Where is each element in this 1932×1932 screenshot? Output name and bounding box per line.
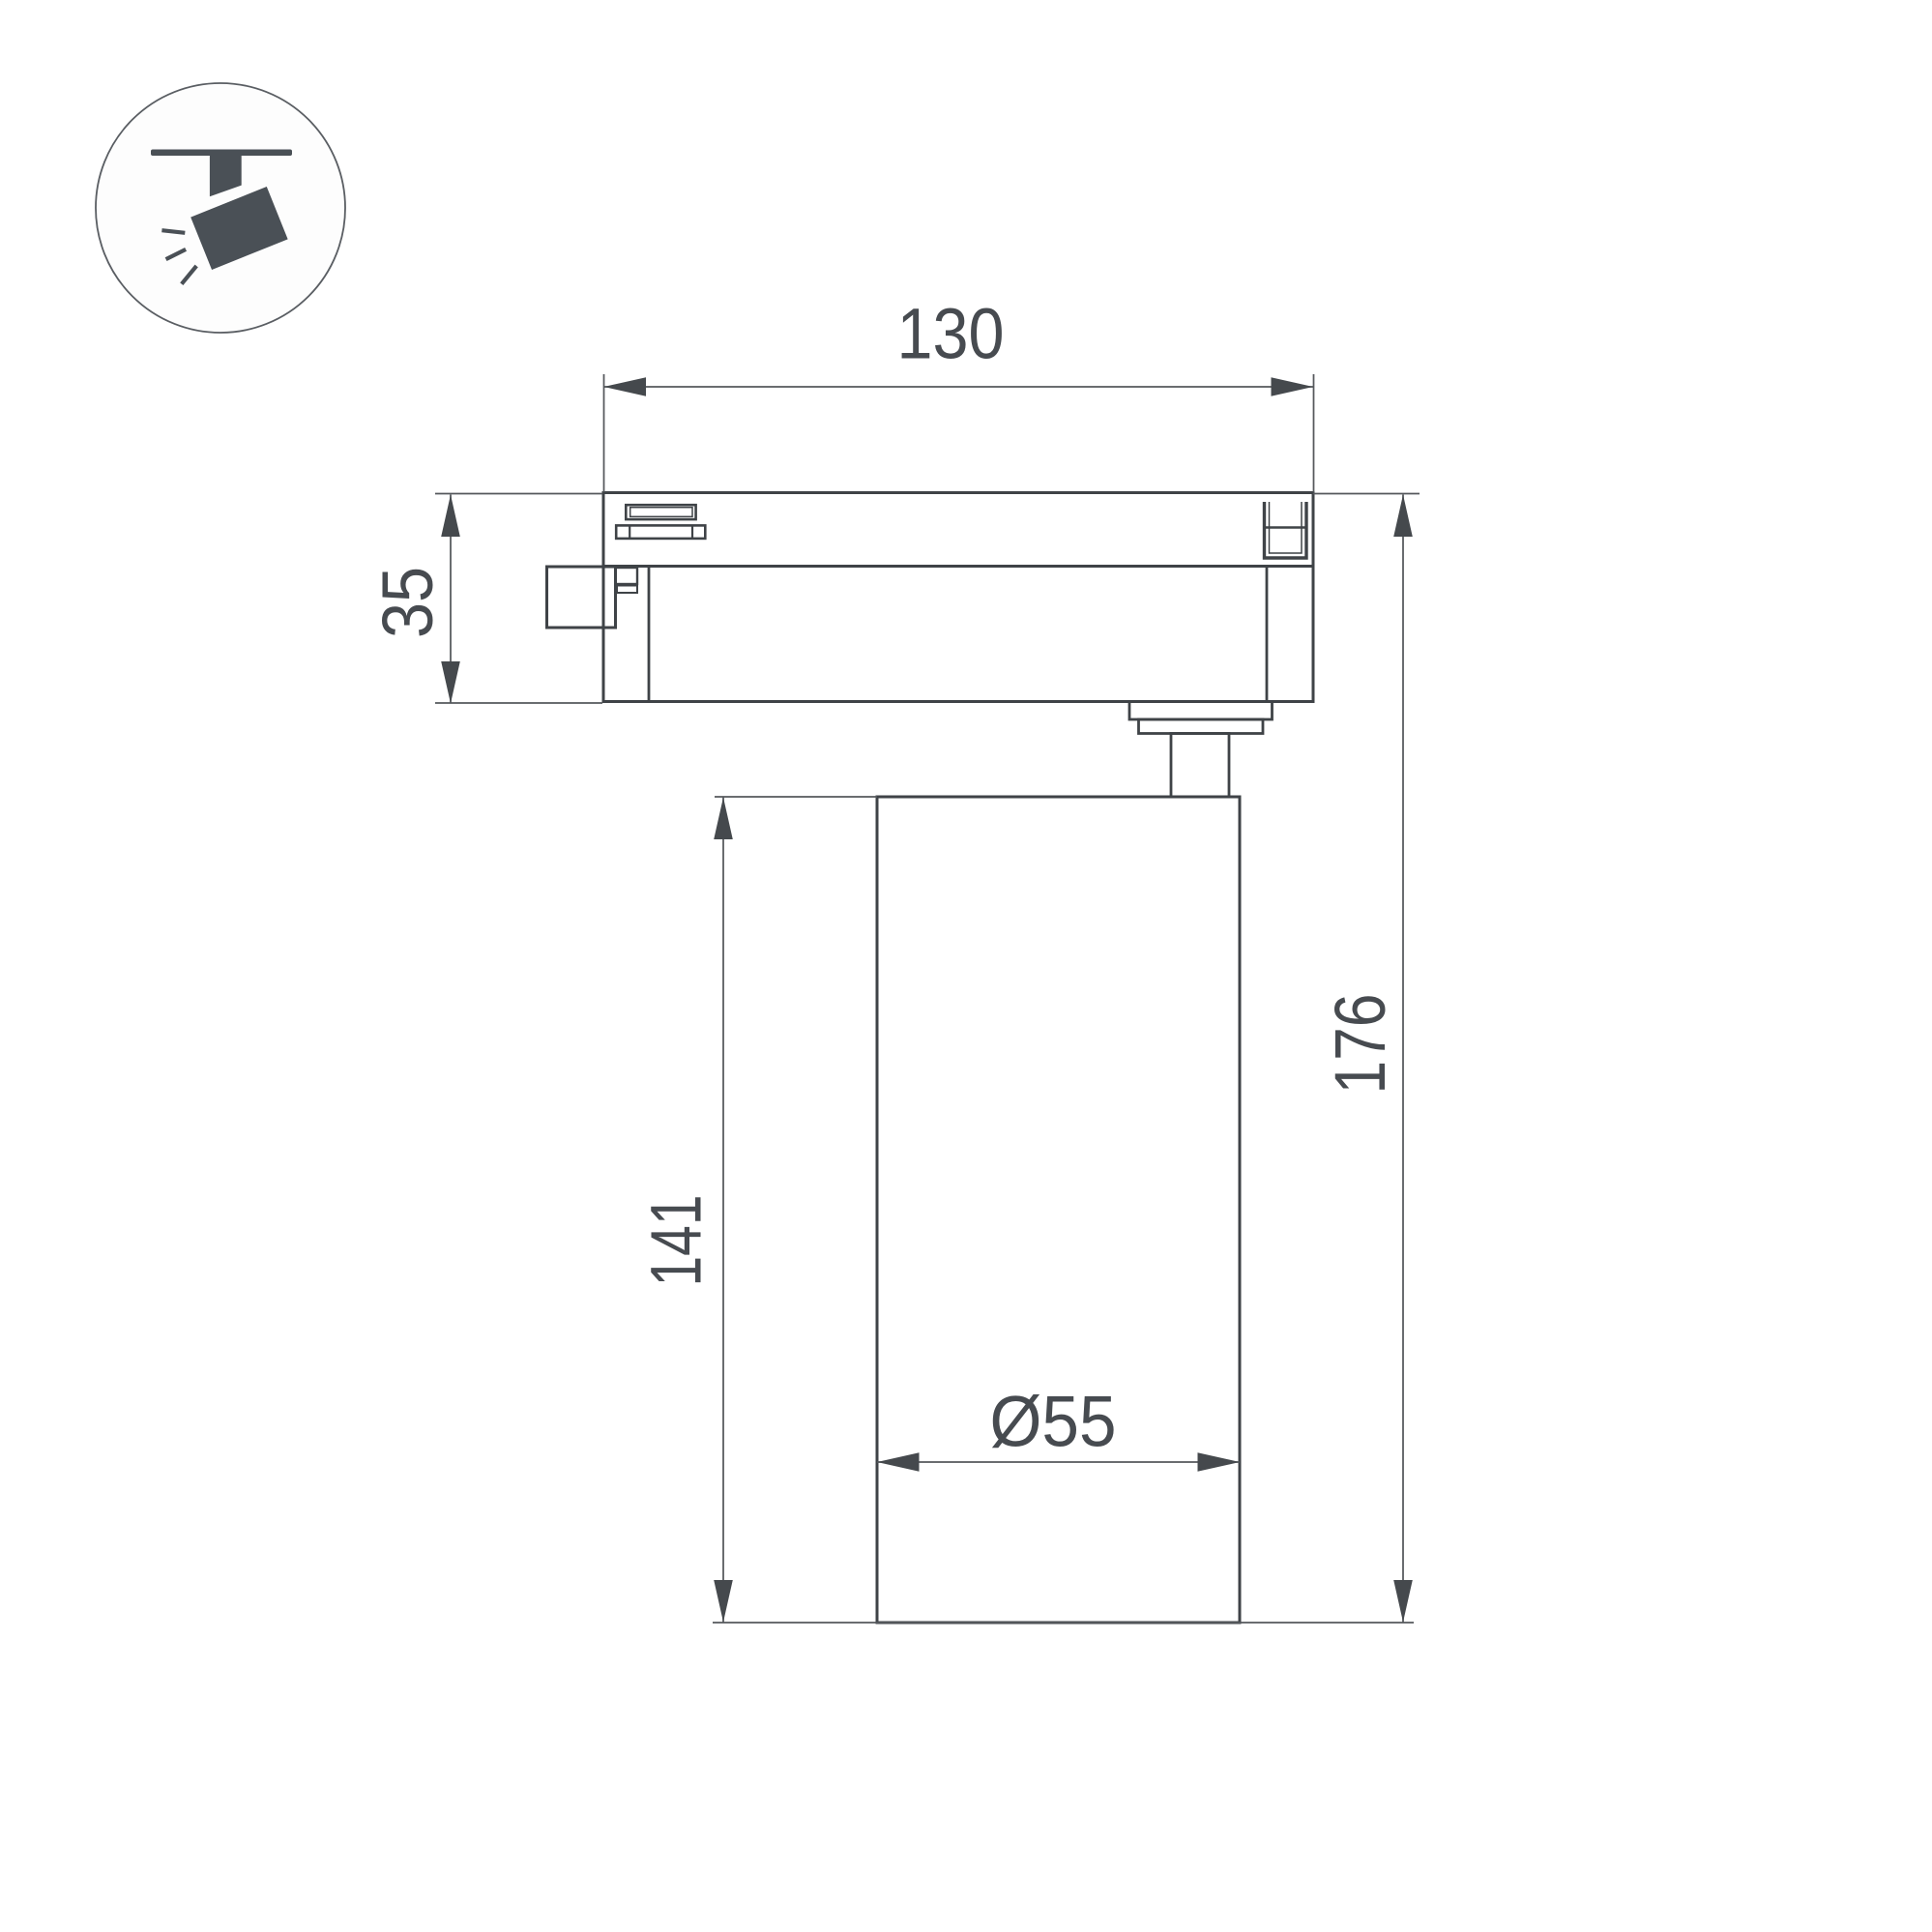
svg-text:176: 176 xyxy=(1320,994,1400,1095)
svg-text:35: 35 xyxy=(367,567,448,638)
svg-text:130: 130 xyxy=(897,294,1005,374)
svg-text:Ø55: Ø55 xyxy=(990,1382,1117,1462)
svg-text:141: 141 xyxy=(636,1195,717,1287)
